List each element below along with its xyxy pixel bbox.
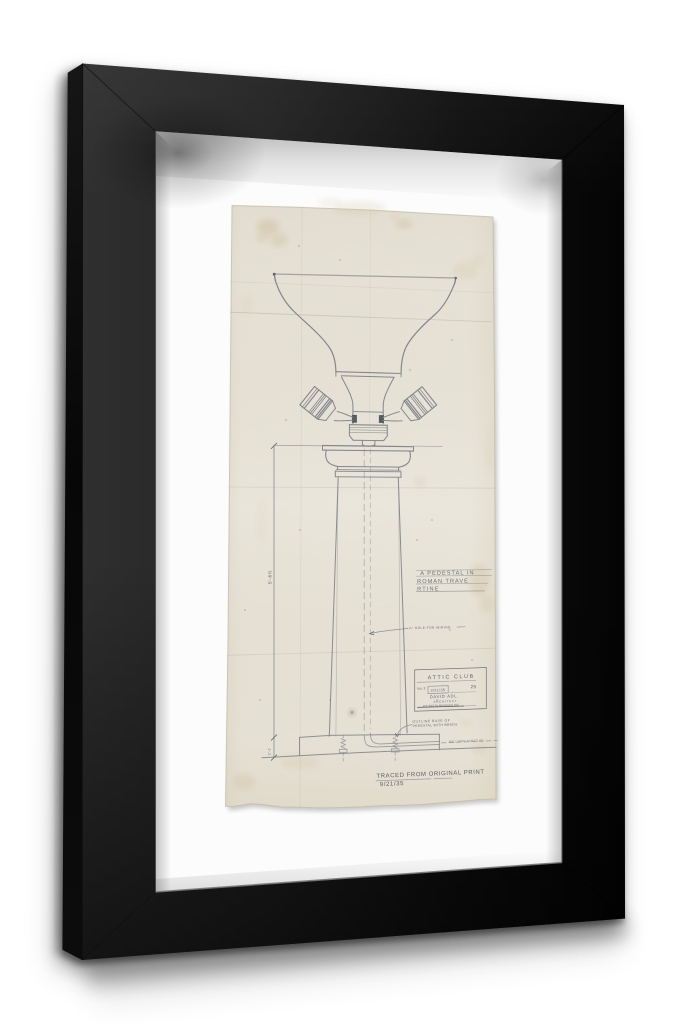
svg-text:1'-3: 1'-3 xyxy=(268,748,272,755)
svg-text:3/21/35: 3/21/35 xyxy=(430,688,445,693)
svg-text:9/21/35: 9/21/35 xyxy=(380,781,405,788)
svg-text:No.3: No.3 xyxy=(417,686,426,690)
svg-text:5'-6½: 5'-6½ xyxy=(266,570,272,584)
svg-text:29: 29 xyxy=(471,684,477,689)
